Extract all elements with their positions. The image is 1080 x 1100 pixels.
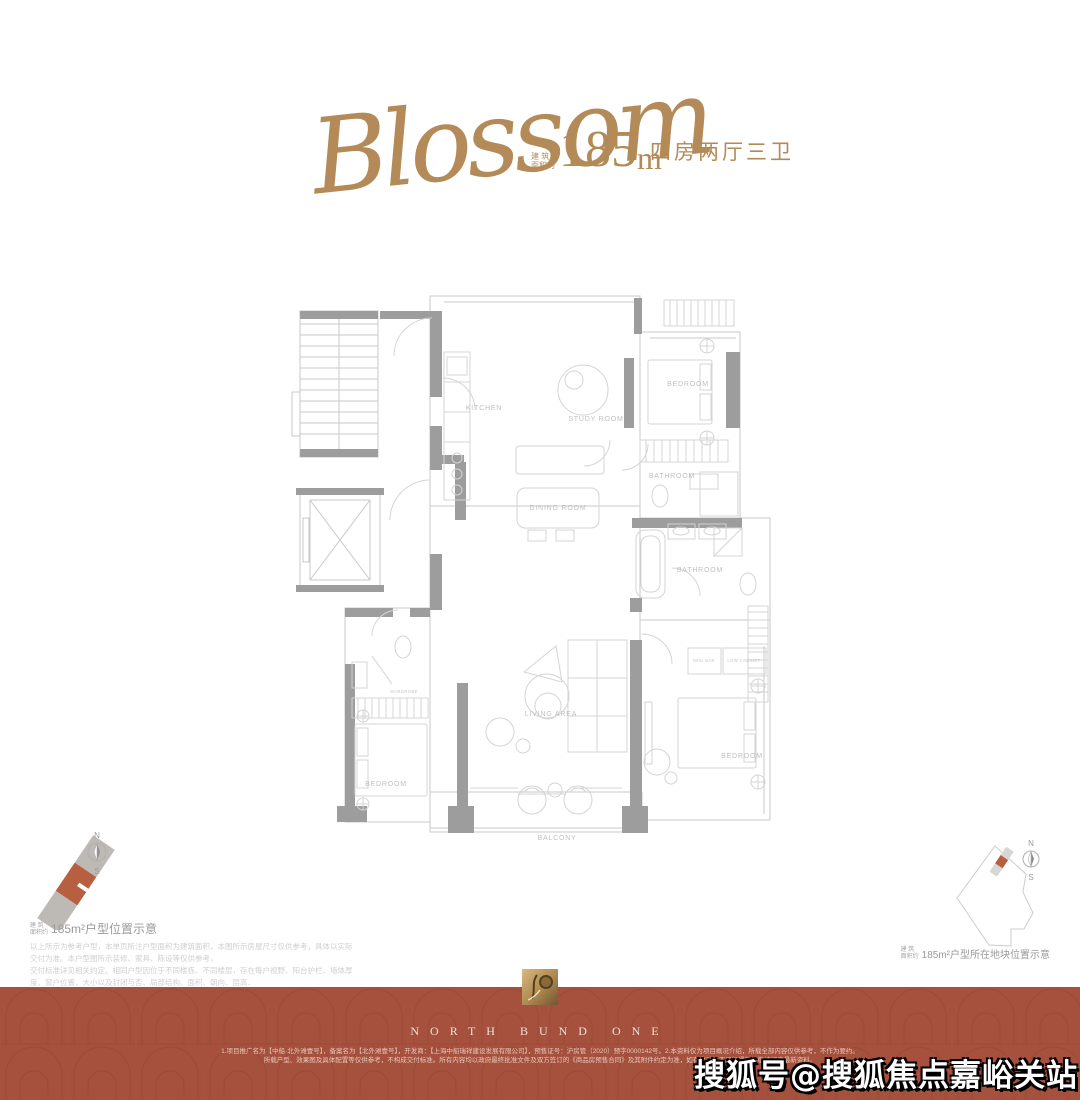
- area-prefix: 建 筑 面积约: [531, 122, 559, 178]
- building-bar: [37, 835, 114, 930]
- building-position-diagram: N S: [20, 815, 180, 930]
- room-label-kitchen: KITCHEN: [466, 405, 502, 412]
- bed-top-right: [648, 360, 712, 424]
- caption-prefix: 建 筑 面积约: [901, 947, 922, 961]
- plan-furniture: [352, 300, 768, 814]
- site-plot-diagram: N S: [940, 822, 1060, 947]
- room-label-study: STUDY ROOM: [568, 416, 623, 423]
- disclaimer-line: 交付标准详见相关约定。相同户型因位于不同楼栋、不同楼层，存在每户视野、阳台护栏、…: [30, 965, 356, 989]
- compass-needle: [1031, 851, 1034, 867]
- compass-south-label: S: [1028, 873, 1033, 882]
- area-prefix-top: 建 筑: [531, 152, 555, 161]
- label-mini-bar: MINI BAR: [693, 658, 715, 663]
- area-block: 建 筑 面积约 185 m2: [531, 122, 669, 178]
- compass-north-label: N: [1028, 839, 1034, 848]
- caption-text: 185m²户型所在地块位置示意: [922, 946, 1050, 961]
- sohu-watermark: 搜狐号@搜狐焦点嘉峪关站: [694, 1050, 1078, 1095]
- site-outline: [957, 846, 1033, 946]
- poster: Blossom 建 筑 面积约 185 m2 四房两厅三卫: [0, 0, 1080, 1100]
- room-label-bathroom-tr: BATHROOM: [649, 473, 695, 480]
- caption-prefix-bottom: 面积约: [901, 954, 919, 961]
- plan-structure: [292, 296, 770, 832]
- room-label-dining: DINING ROOM: [529, 505, 586, 512]
- room-label-bedroom-master: BEDROOM: [721, 753, 763, 760]
- disclaimer-line: 以上所示为参考户型，本单页所注户型面积为建筑面积，本图所示房屋尺寸仅供参考，具体…: [30, 941, 356, 965]
- compass-north-label: N: [94, 831, 100, 840]
- label-low-cabinet: LOW CABINET: [727, 658, 760, 663]
- brand-name: NORTH BUND ONE: [0, 1024, 1080, 1039]
- right-diagram-caption: 建 筑 面积约 185m²户型所在地块位置示意: [900, 946, 1050, 961]
- room-label-bedroom-tr: BEDROOM: [667, 381, 709, 388]
- staircase: [300, 311, 378, 449]
- left-diagram-caption: 建 筑 面积约 185m²户型位置示意: [30, 920, 157, 937]
- brand-logo: [522, 969, 558, 1005]
- area-prefix-bottom: 面积约: [531, 161, 555, 170]
- area-value: 185: [559, 122, 637, 178]
- plan-small-labels: MINI BAR LOW CABINET WARDROBE: [390, 658, 761, 694]
- study-desk: [558, 365, 608, 415]
- room-label-bathroom-master: BATHROOM: [677, 567, 723, 574]
- caption-prefix-bottom: 面积约: [30, 930, 48, 937]
- floor-plan: KITCHEN STUDY ROOM BEDROOM BATHROOM DINI…: [290, 285, 790, 845]
- compass-south-label: S: [94, 867, 99, 876]
- room-label-bedroom-bl: BEDROOM: [365, 781, 407, 788]
- room-label-living: LIVING AREA: [525, 711, 577, 718]
- room-label-balcony: BALCONY: [537, 835, 576, 842]
- plan-walls: [296, 298, 742, 833]
- label-wardrobe: WARDROBE: [390, 689, 418, 694]
- caption-text: 185m²户型位置示意: [51, 920, 157, 937]
- layout-description: 四房两厅三卫: [650, 136, 794, 166]
- caption-prefix: 建 筑 面积约: [30, 923, 51, 937]
